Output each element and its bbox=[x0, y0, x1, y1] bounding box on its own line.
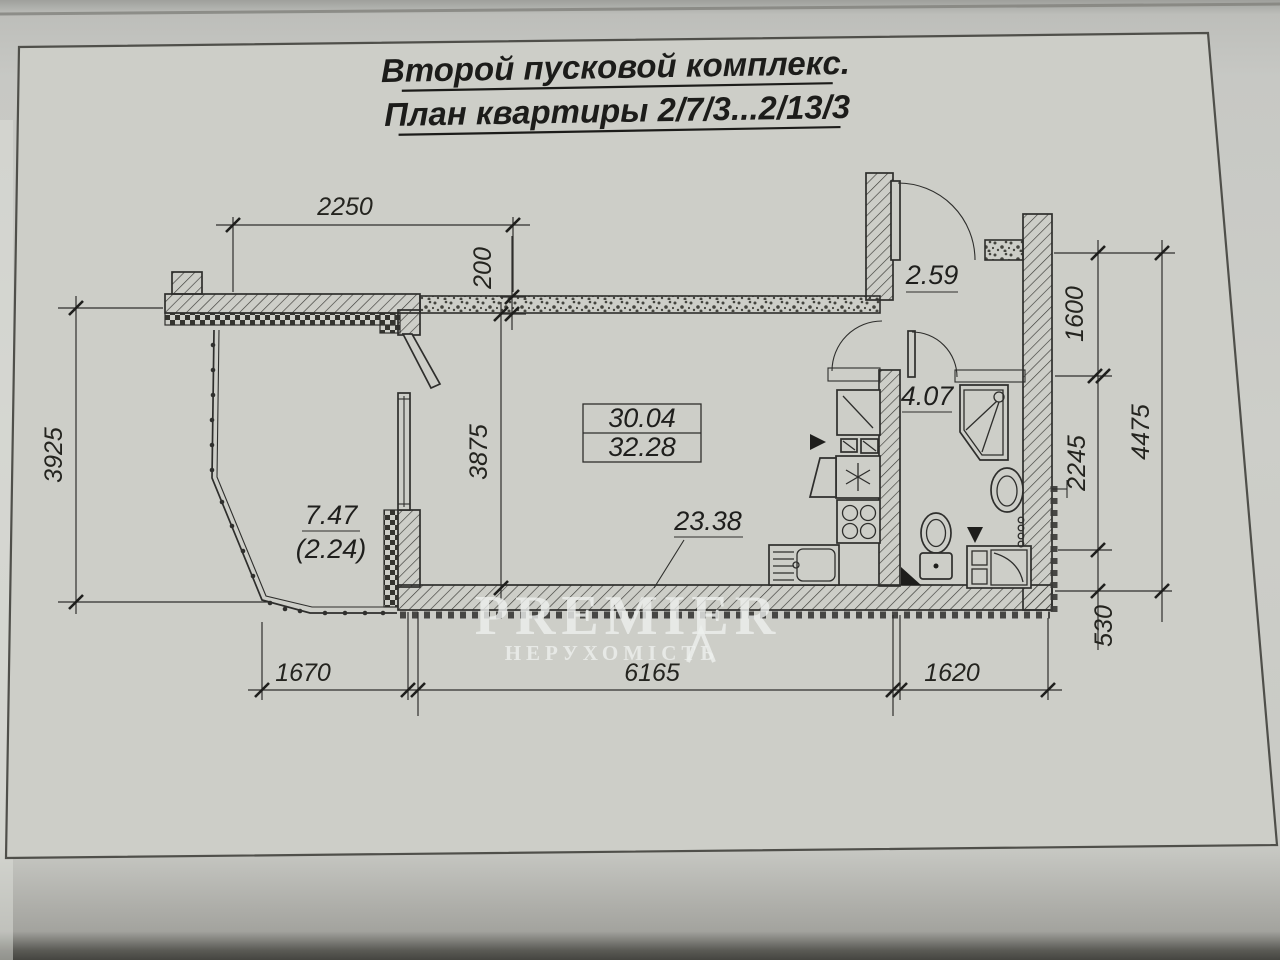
wall-pilaster bbox=[172, 272, 202, 294]
watermark-brand: PREMIER bbox=[475, 585, 781, 647]
sink-icon bbox=[769, 545, 839, 585]
dim-label-1620: 1620 bbox=[924, 659, 980, 687]
bathroom-door-leaf bbox=[908, 331, 915, 377]
scanned-floor-plan-photo: Второй пусковой комплекс. План квартиры … bbox=[0, 0, 1280, 960]
dim-label-530: 530 bbox=[1090, 605, 1118, 647]
entrance-door-leaf bbox=[891, 181, 900, 260]
dim-label-1600: 1600 bbox=[1061, 286, 1089, 342]
dim-label-3925: 3925 bbox=[40, 427, 68, 483]
balcony-top-insulation bbox=[165, 313, 395, 325]
area-living-total: 30.04 bbox=[608, 403, 676, 433]
left-wall-insulation-column bbox=[384, 510, 398, 607]
hall-left-wall bbox=[866, 173, 893, 300]
left-wall-bottom bbox=[398, 510, 420, 587]
area-hall: 2.59 bbox=[905, 260, 959, 290]
entry-wall-segment bbox=[985, 240, 1023, 260]
toilet-button bbox=[934, 564, 939, 569]
area-bathroom: 4.07 bbox=[901, 381, 955, 411]
bathroom-divider-wall bbox=[879, 370, 900, 586]
room-top-wall bbox=[420, 296, 880, 313]
dim-label-1670: 1670 bbox=[275, 659, 331, 687]
dim-label-4475: 4475 bbox=[1127, 404, 1155, 460]
washing-machine-icon bbox=[967, 546, 1031, 588]
dim-label-2245: 2245 bbox=[1063, 435, 1091, 492]
left-wall-top bbox=[398, 310, 420, 335]
paper-top-edge bbox=[0, 4, 1280, 14]
area-balcony: 7.47 bbox=[305, 500, 359, 530]
area-overall-total: 32.28 bbox=[608, 432, 676, 462]
balcony-top-wall bbox=[165, 294, 420, 313]
dim-label-200: 200 bbox=[469, 247, 497, 290]
left-wall-corner-insulation bbox=[380, 313, 400, 333]
area-balcony-coeff: (2.24) bbox=[296, 534, 367, 564]
area-living-kitchen: 23.38 bbox=[673, 506, 742, 536]
dim-label-2250: 2250 bbox=[316, 193, 373, 221]
dim-label-3875: 3875 bbox=[465, 424, 493, 480]
